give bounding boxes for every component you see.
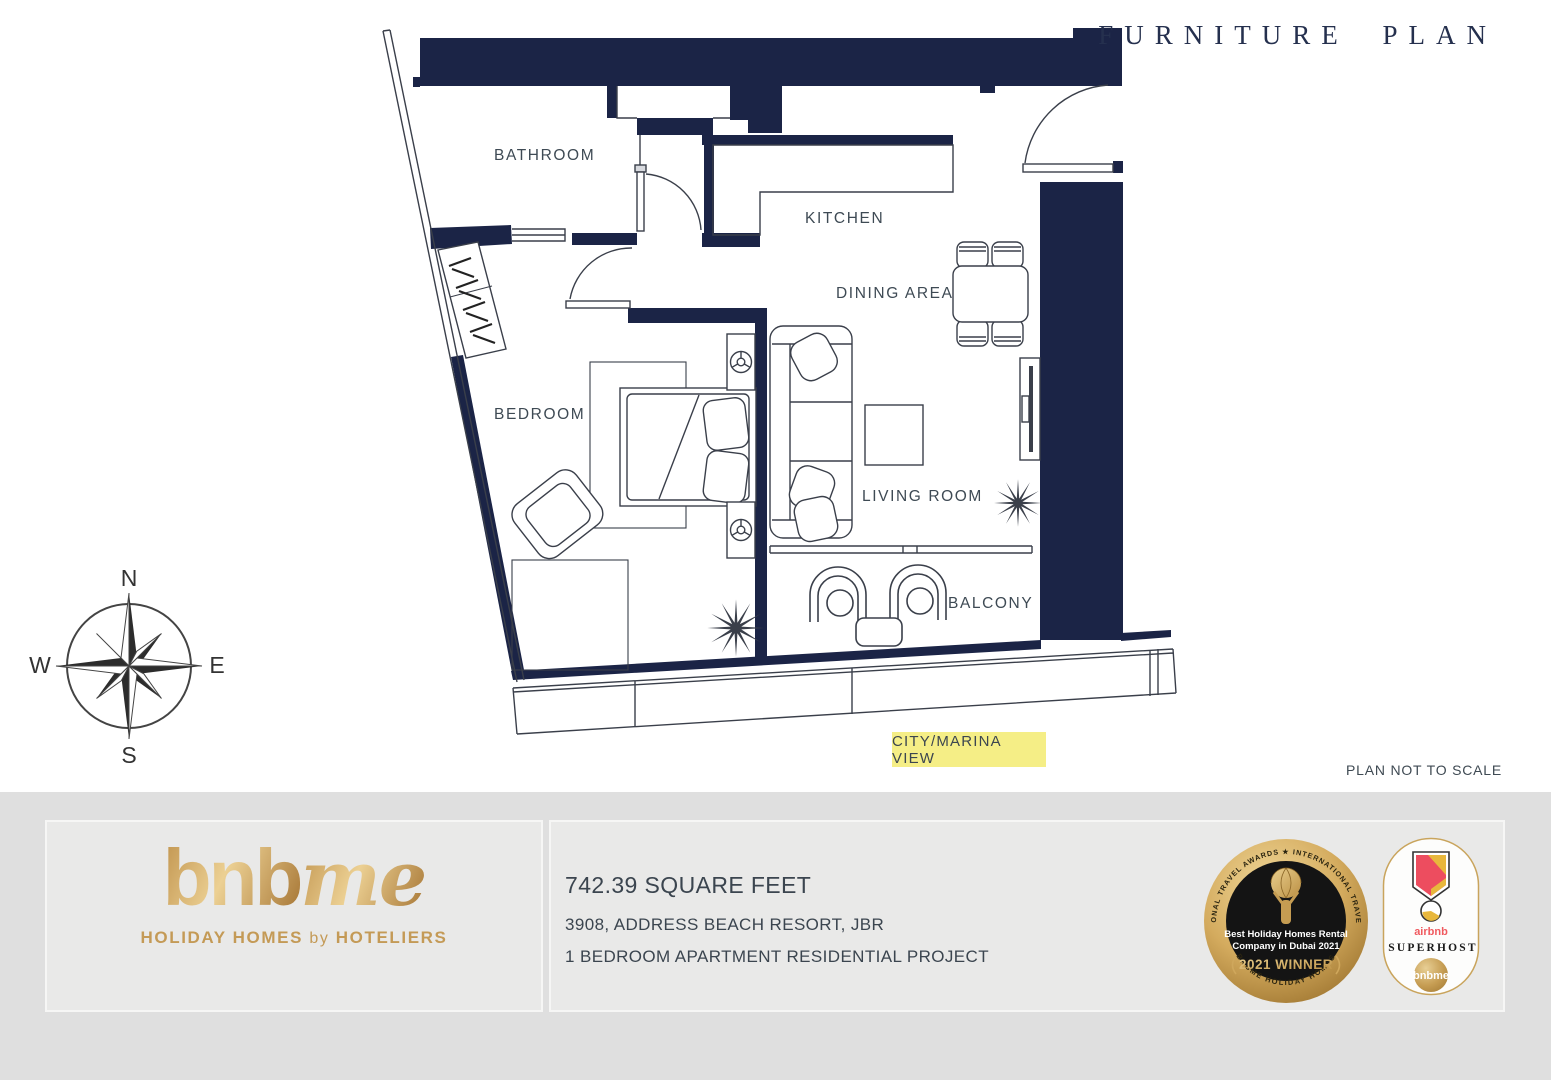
wardrobe [438, 242, 506, 358]
dining-chair [992, 242, 1023, 268]
superhost-text: SUPERHOST [1388, 942, 1477, 954]
dining-chair [957, 242, 988, 268]
pillow [702, 397, 750, 452]
award-line2: Company in Dubai 2021 [1232, 941, 1340, 952]
bnbme-logo: bnbme HOLIDAY HOMES by HOTELIERS [45, 838, 543, 948]
page: FURNITURE PLAN BATHROOM KITCHEN DINING A… [0, 0, 1551, 1080]
living-furniture [770, 326, 1040, 544]
award-line1: Best Holiday Homes Rental [1224, 929, 1348, 940]
unit-project: 1 BEDROOM APARTMENT RESIDENTIAL PROJECT [565, 947, 989, 967]
logo-tagline: HOLIDAY HOMES by HOTELIERS [45, 928, 543, 948]
logo-bnb-text: bnb [163, 838, 301, 918]
entry-door-swing [1025, 85, 1108, 163]
dining-chair [992, 320, 1023, 346]
bedroom-door-swing [570, 248, 632, 299]
room-label-living: LIVING ROOM [862, 488, 983, 506]
superhost-badge: airbnb SUPERHOST bnbme [1382, 837, 1480, 997]
logo-me-text: me [300, 841, 425, 917]
bedroom-rug-2 [512, 560, 628, 670]
dining-set [953, 242, 1028, 346]
room-label-balcony: BALCONY [948, 595, 1033, 613]
pillow [702, 450, 750, 505]
airbnb-brand-text: airbnb [1414, 926, 1448, 938]
room-label-bedroom: BEDROOM [494, 406, 585, 424]
tagline-by: by [309, 930, 329, 947]
bathroom-door-swing [646, 174, 701, 230]
room-label-bathroom: BATHROOM [494, 147, 595, 165]
compass-west-label: W [27, 652, 53, 679]
view-direction-badge: CITY/MARINA VIEW [892, 732, 1046, 767]
balcony-table [856, 618, 902, 646]
room-label-kitchen: KITCHEN [805, 210, 884, 228]
page-title: FURNITURE PLAN [1098, 20, 1497, 51]
tagline-holiday-homes: HOLIDAY HOMES [141, 928, 304, 947]
room-label-dining: DINING AREA [836, 285, 954, 303]
unit-address: 3908, ADDRESS BEACH RESORT, JBR [565, 915, 884, 935]
coin-bnbme-text: bnbme [1413, 970, 1449, 982]
armchair [506, 464, 608, 564]
unit-area: 742.39 SQUARE FEET [565, 872, 811, 899]
tagline-hoteliers: HOTELIERS [336, 928, 448, 947]
scale-note: PLAN NOT TO SCALE [1346, 762, 1502, 778]
balcony-furniture [810, 565, 946, 646]
dining-chair [957, 320, 988, 346]
compass-north-label: N [116, 565, 142, 592]
compass-rose-icon [56, 593, 202, 739]
plant-icon [994, 479, 1042, 527]
compass-south-label: S [116, 742, 142, 769]
award-winner: 2021 WINNER [1239, 957, 1333, 972]
award-badge: ★ INTERNATIONAL TRAVEL AWARDS ★ INTERNAT… [1200, 836, 1372, 1006]
dining-table [953, 266, 1028, 322]
coffee-table [865, 405, 923, 465]
compass-east-label: E [204, 652, 230, 679]
